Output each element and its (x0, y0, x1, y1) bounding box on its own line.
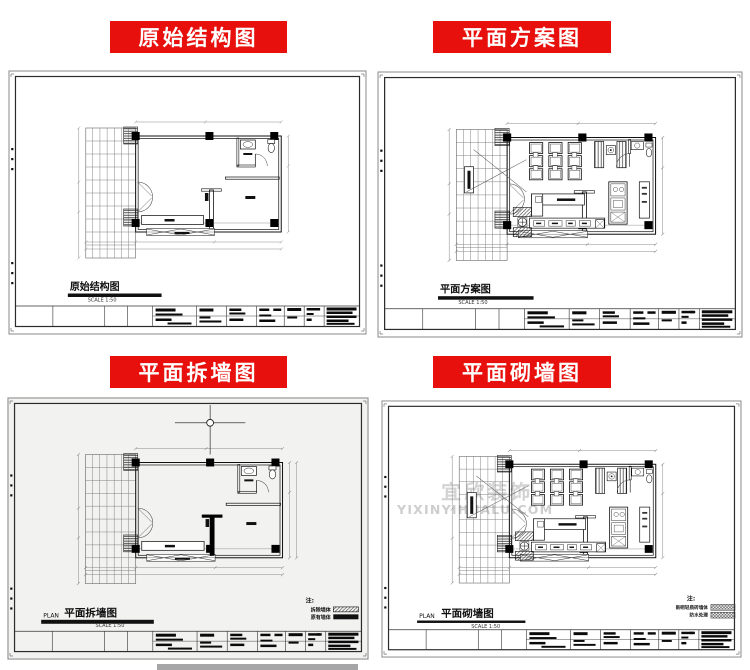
titleblock-underline (68, 294, 162, 298)
legend-item-waterproof: 防水处理 (690, 612, 709, 619)
legend-swatch-waterproof (711, 612, 735, 618)
legend-item-existing-wall: 原有墙体 (311, 614, 332, 621)
legend-note: 注: (687, 595, 695, 603)
titleblock-plan-prefix: PLAN (43, 612, 59, 619)
titleblock-title: 平面方案图 (440, 283, 491, 296)
legend-item-demolished-wall: 拆除墙体 (311, 606, 332, 613)
banner-wall-demolition-label: 平面拆墙图 (139, 357, 259, 387)
sheet-original-structure: 原始结构图 SCALE 1:50 (8, 70, 367, 335)
titleblock-title: 平面砌墙图 (441, 607, 494, 620)
sheet-plan-scheme: 平面方案图 SCALE 1:50 (377, 71, 743, 338)
sheet-wall-demolition: PLAN 平面拆墙图 SCALE 1:50 注: 拆除墙体 原有墙体 (7, 397, 369, 660)
page: { "banners": { "original": "原始结构图", "sch… (0, 0, 750, 670)
titleblock-title: 平面拆墙图 (64, 606, 117, 619)
paper (8, 70, 367, 335)
banner-plan-scheme-label: 平面方案图 (462, 22, 582, 52)
legend-note: 注: (306, 596, 314, 604)
titleblock-underline (417, 621, 525, 623)
titleblock-scale: SCALE 1:50 (458, 300, 487, 306)
banner-wall-construction-label: 平面砌墙图 (462, 357, 582, 387)
banner-wall-construction: 平面砌墙图 (433, 356, 611, 388)
titleblock-title: 原始结构图 (70, 280, 120, 293)
legend-swatch-demolished-wall (333, 607, 358, 612)
drawing-wall-demolition: PLAN 平面拆墙图 SCALE 1:50 注: 拆除墙体 原有墙体 (7, 397, 369, 660)
titleblock-scale: SCALE 1:50 (88, 297, 117, 303)
sheet-wall-construction: 宜欣装饰 YIXINYIHUALU.COM PLAN 平面砌墙图 SCALE 1… (381, 400, 742, 658)
legend-swatch-existing-wall (333, 614, 358, 619)
drawing-original-structure: 原始结构图 SCALE 1:50 (8, 70, 367, 335)
banner-wall-demolition: 平面拆墙图 (110, 356, 287, 388)
titleblock-scale: SCALE 1:50 (95, 623, 124, 629)
titleblock-scale: SCALE 1:50 (471, 624, 500, 630)
banner-plan-scheme: 平面方案图 (433, 21, 611, 53)
banner-original-structure-label: 原始结构图 (139, 22, 259, 52)
titleblock-underline (438, 296, 534, 300)
bottom-cutoff-bar (157, 664, 358, 670)
drawing-plan-scheme: 平面方案图 SCALE 1:50 (377, 71, 743, 338)
legend-item-new-wall: 新砌轻质砖墙体 (676, 604, 709, 611)
legend-swatch-new-wall (711, 604, 735, 610)
drawing-wall-construction: 宜欣装饰 YIXINYIHUALU.COM PLAN 平面砌墙图 SCALE 1… (381, 400, 742, 658)
titleblock-plan-prefix: PLAN (419, 614, 435, 620)
watermark-line1: 宜欣装饰 (441, 481, 533, 504)
banner-original-structure: 原始结构图 (110, 21, 287, 53)
